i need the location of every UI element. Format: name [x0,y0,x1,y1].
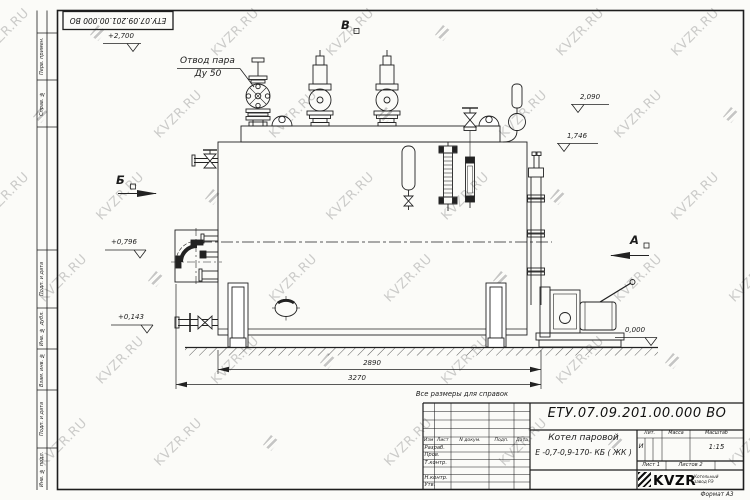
col-ndokum: N докум. [459,439,480,444]
dimension-2890: 2890 [363,360,381,367]
sheet-number: Лист 1 [642,463,660,468]
margin-label-vzam-inv: Взам. инв. № [37,349,47,390]
col-podp: Подп. [495,439,509,444]
col-izm: Изм [424,439,433,444]
row-prov: Пров. [425,453,440,458]
product-name: Котел паровой [548,434,619,443]
drawing-sheet: KVZR.RUKVZR.RUKVZR.RUKVZR.RUKVZR.RUKVZR.… [0,0,750,500]
elevation-0143: +0,143 [118,314,144,321]
reference-note: Все размеры для справок [416,391,508,398]
view-label-v: В [341,20,350,32]
row-razrab: Разраб. [425,446,445,451]
format-note: Формат А3 [700,493,733,499]
margin-label-inv-dubl: Инв. № дубл. [37,308,47,349]
margin-label-sprav-no: Справ. № [37,80,47,127]
sheets-total: Листов 2 [678,463,702,468]
lit-label: Лит. [644,432,655,437]
scale-value: 1:15 [709,444,725,451]
margin-label-perv-primen: Перв. примен. [37,33,47,80]
dimension-3270: 3270 [348,375,366,382]
logo-sub-2: завод РЭ [694,480,714,484]
view-label-a: А [630,235,639,247]
elevation-1746: 1,746 [567,133,587,140]
mass-label: Масса [668,432,683,437]
rotated-doc-number: ЕТУ.07.09.201.00.000 ВО [63,11,173,29]
product-code: Е -0,7-0,9-170- КБ ( ЖК ) [535,449,632,457]
elevation-2700: +2,700 [108,33,134,40]
col-data: Дата [516,439,528,444]
margin-label-podp-data-2: Подп. и дата [37,390,47,448]
callout-dn50: Ду 50 [195,70,222,79]
row-nkontr: Н.контр. [425,476,448,481]
callout-steam-outlet: Отвод пара [180,57,235,66]
elevation-2090: 2,090 [580,94,600,101]
elevation-0000: 0,000 [625,327,645,334]
kvzr-logo-text: KVZR [653,473,696,489]
lit-value: И [639,443,644,450]
col-list: Лист [437,439,449,444]
view-label-b: Б [116,175,125,187]
margin-label-podp-data-1: Подп. и дата [37,250,47,308]
row-tkontr: Т.контр. [425,461,447,466]
kvzr-logo-icon [638,472,651,487]
elevation-0796: +0,796 [111,239,137,246]
row-utv: Утв. [425,483,436,488]
margin-label-inv-podl: Инв. № подл. [37,448,47,490]
title-doc-number: ЕТУ.07.09.201.00.000 ВО [530,406,744,421]
scale-label: Масштаб [705,432,728,437]
